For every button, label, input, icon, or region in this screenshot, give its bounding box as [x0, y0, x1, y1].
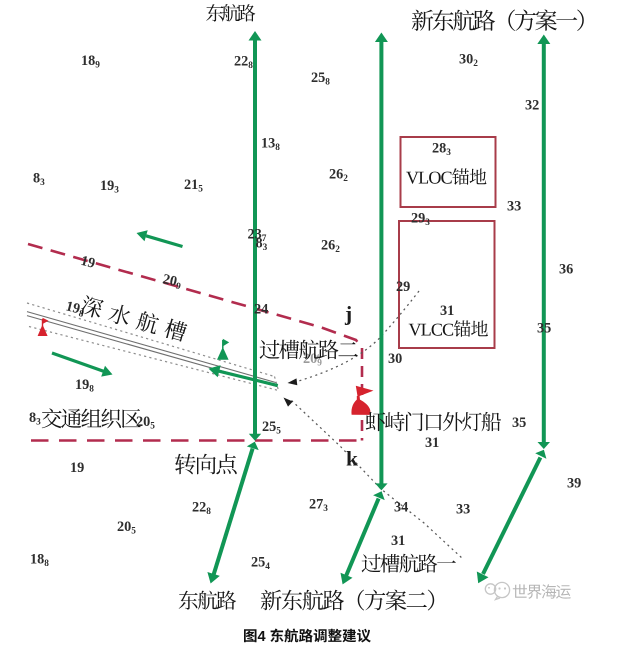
svg-text:255: 255: [262, 419, 281, 436]
svg-text:283: 283: [432, 141, 451, 158]
svg-text:31: 31: [391, 533, 405, 549]
svg-text:33: 33: [456, 502, 470, 518]
svg-text:24: 24: [254, 302, 268, 318]
svg-text:228: 228: [192, 500, 211, 517]
svg-text:83: 83: [33, 171, 45, 188]
svg-text:30: 30: [388, 351, 402, 367]
svg-text:29: 29: [396, 279, 410, 295]
svg-text:36: 36: [559, 262, 573, 278]
svg-text:31: 31: [425, 435, 439, 451]
svg-text:205: 205: [117, 519, 136, 536]
svg-text:31: 31: [440, 303, 454, 319]
svg-text:293: 293: [411, 211, 430, 228]
svg-text:205: 205: [136, 414, 155, 431]
svg-text:35: 35: [537, 321, 551, 337]
svg-text:262: 262: [321, 238, 340, 255]
svg-text:262: 262: [329, 167, 348, 184]
svg-text:33: 33: [507, 199, 521, 215]
svg-text:254: 254: [251, 555, 270, 572]
svg-text:39: 39: [567, 476, 581, 492]
svg-text:215: 215: [184, 177, 203, 194]
svg-text:32: 32: [525, 98, 539, 114]
svg-text:188: 188: [30, 552, 49, 569]
svg-text:258: 258: [311, 70, 330, 87]
svg-text:198: 198: [75, 377, 94, 394]
svg-text:19: 19: [70, 460, 84, 476]
svg-text:35: 35: [512, 415, 526, 431]
svg-text:189: 189: [81, 53, 100, 70]
svg-text:228: 228: [234, 54, 253, 71]
svg-text:302: 302: [459, 52, 478, 69]
svg-text:j: j: [344, 302, 352, 326]
svg-text:193: 193: [100, 178, 119, 195]
svg-text:209: 209: [161, 271, 183, 292]
svg-text:34: 34: [394, 500, 408, 516]
svg-text:19: 19: [79, 253, 97, 272]
svg-text:273: 273: [309, 497, 328, 514]
svg-text:138: 138: [261, 136, 280, 153]
svg-text:83: 83: [29, 410, 41, 427]
svg-text:k: k: [346, 447, 358, 471]
